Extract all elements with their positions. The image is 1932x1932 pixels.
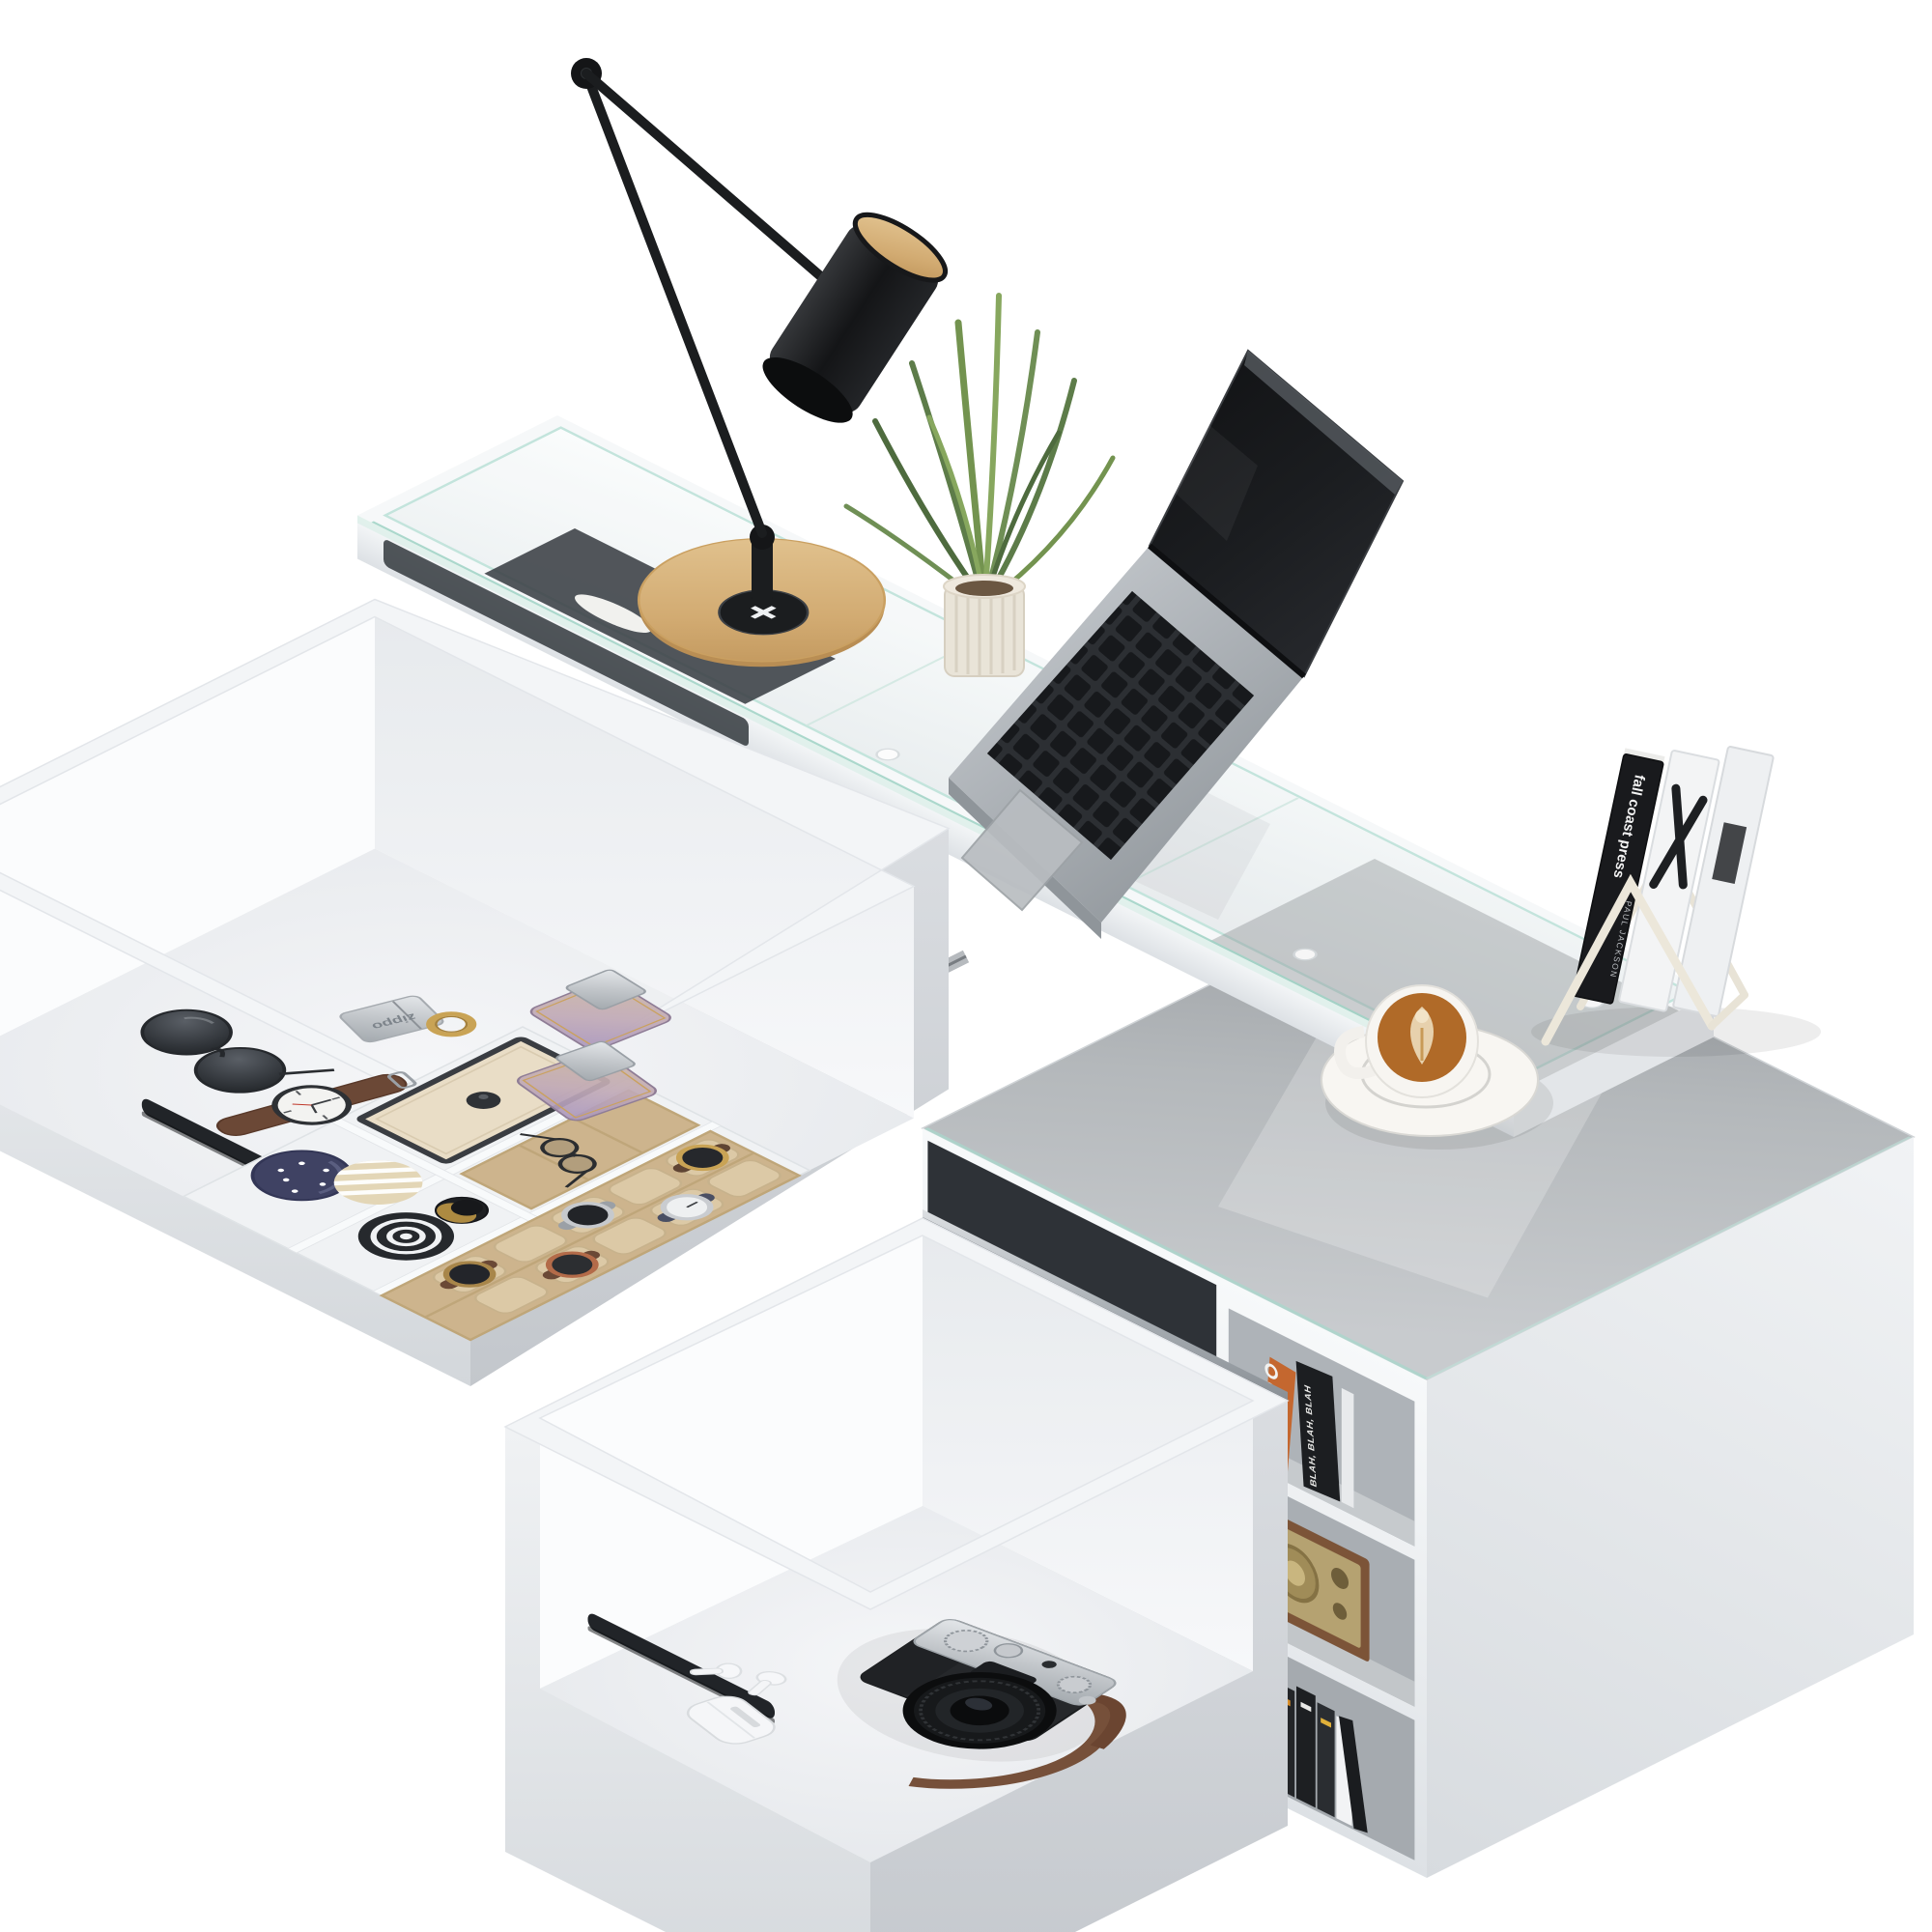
white-booklet [1342,1388,1354,1508]
books: fall coast press PAUL JACKSON [1573,725,1774,1026]
books-reflection [1531,1007,1821,1057]
product-render-stage: BLAH, BLAH, BLAH [0,0,1932,1932]
pot-soil [955,581,1013,596]
plant-pot [944,575,1025,676]
desk-scene: BLAH, BLAH, BLAH [0,0,1932,1932]
